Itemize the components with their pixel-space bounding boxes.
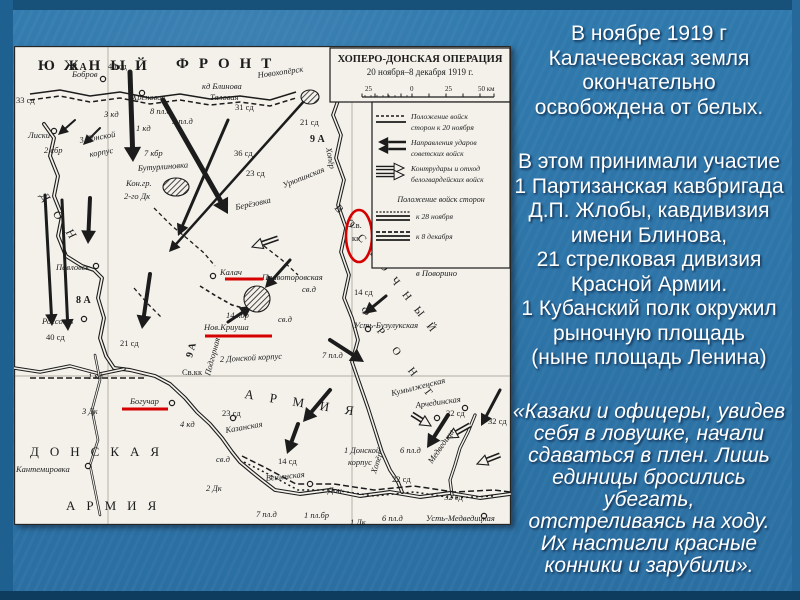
- map-label: 8 А: [76, 295, 92, 306]
- map-label: Св.кк: [182, 367, 203, 377]
- map-label: Богучар: [129, 396, 159, 406]
- map-image: ЮЖНЫЙФРОНТДОНСКАЯАРМИЯАРМИЯДОНВОСТОЧНЫЙФ…: [14, 46, 511, 525]
- map-label: 14 кбр: [226, 310, 249, 320]
- map-label: 1 кд: [136, 123, 151, 133]
- map-label: Калач: [219, 267, 242, 277]
- map-label: Хреновое: [131, 92, 166, 102]
- map-subtitle: 20 ноября–8 декабря 1919 г.: [367, 67, 473, 77]
- map-label: Урюпинская: [281, 164, 326, 190]
- map-label: Нов.Криуша: [203, 322, 249, 332]
- map-label: 40 сд: [108, 61, 127, 71]
- map-label: 3 Донской: [78, 129, 117, 145]
- map-label: 4 кд: [180, 419, 195, 429]
- slide-border-top: [0, 0, 800, 10]
- map-label: 14 сд: [278, 456, 297, 466]
- map-label: Бутурлиновка: [136, 160, 188, 174]
- map-label: в Поворино: [416, 268, 457, 278]
- map-label: 21 сд: [120, 338, 139, 348]
- map-label: 3 Дк: [81, 406, 99, 416]
- map-label: Правоторовская: [261, 272, 323, 282]
- map-label: 5 пл.д: [172, 116, 193, 126]
- map-label: 9 А: [184, 341, 199, 359]
- map-scale-label: 25: [445, 85, 453, 93]
- text-line: В этом принимали участие: [500, 150, 798, 175]
- map-label: корпус: [348, 457, 372, 467]
- map-label: 22 сд: [392, 474, 411, 484]
- text-line: (ныне площадь Ленина): [500, 346, 798, 371]
- map-label: кд Блинова: [202, 81, 242, 91]
- map-label: 32 сд: [444, 492, 463, 502]
- map-label: корпус: [89, 145, 115, 159]
- text-line: Красной Армии.: [500, 273, 798, 298]
- map-scale-label: 0: [410, 85, 414, 93]
- text-line: Их настигли красные: [500, 533, 798, 555]
- map-label: 9 А: [310, 134, 326, 145]
- map-label: 7 пл.д: [322, 350, 343, 360]
- text-line: конники и зарубили».: [500, 555, 798, 577]
- legend-label: сторон к 20 ноября: [411, 123, 474, 132]
- text-line: убегать,: [500, 489, 798, 511]
- map-scale-label: 50 км: [478, 85, 495, 93]
- map-label: Бобров: [71, 69, 98, 79]
- map-legend: Положение войсксторон к 20 ноябряНаправл…: [372, 102, 510, 268]
- text-line: рыночную площадь: [500, 322, 798, 347]
- text-line: имени Блинова,: [500, 224, 798, 249]
- text-line: окончательно: [500, 71, 798, 96]
- map-label: 21 сд: [300, 117, 319, 127]
- text-line: 1 Партизанская кавбригада: [500, 175, 798, 200]
- map-label: 3 кд: [103, 109, 119, 119]
- map-label: 2 сбр: [44, 145, 63, 155]
- text-line: себя в ловушке, начали: [500, 423, 798, 445]
- map-label: Кантемировка: [15, 464, 70, 474]
- map-label: 1 кд: [88, 371, 103, 381]
- map-label: Хопёр: [324, 146, 338, 170]
- map-title-box: ХОПЕРО-ДОНСКАЯ ОПЕРАЦИЯ20 ноября–8 декаб…: [330, 48, 510, 102]
- map-label: 23 сд: [222, 408, 241, 418]
- legend-label: Направления ударов: [410, 138, 477, 147]
- paragraph-quote: «Казаки и офицеры, увидевсебя в ловушке,…: [500, 401, 798, 577]
- map-label: Усть-Медведицкая: [426, 513, 495, 523]
- map-label: Берёзовка: [233, 195, 271, 212]
- map-label: 2-го Дк: [124, 191, 151, 201]
- map-label: 6 пл.д: [382, 513, 403, 523]
- map-label: Казанская: [224, 419, 264, 436]
- map-label: 2 Донской корпус: [220, 351, 283, 364]
- map-label: 7 кбр: [144, 148, 163, 158]
- text-line: 21 стрелковая дивизия: [500, 248, 798, 273]
- map-label: 8 пл.д: [150, 106, 171, 116]
- text-line: Д.П. Жлобы, кавдивизия: [500, 199, 798, 224]
- legend-label: Контрудары и отход: [410, 164, 480, 173]
- map-label: Медведица: [425, 427, 456, 466]
- map-label: Св.: [350, 220, 362, 230]
- map-label: 7 пл.д: [256, 509, 277, 519]
- map-scale-label: 25: [365, 85, 373, 93]
- paragraph-intro: В ноябре 1919 гКалачеевская земляокончат…: [500, 22, 798, 120]
- map-label: Павловск: [55, 262, 90, 272]
- text-line: 1 Кубанский полк окружил: [500, 297, 798, 322]
- map-label: Лиски: [27, 130, 50, 140]
- map-label: св.д: [302, 284, 317, 294]
- slide-border-left: [0, 0, 13, 600]
- map-label: 33 сд: [16, 95, 35, 105]
- operation-map: ЮЖНЫЙФРОНТДОНСКАЯАРМИЯАРМИЯДОНВОСТОЧНЫЙФ…: [14, 46, 511, 525]
- legend-header: Положение войск сторон: [396, 195, 484, 204]
- map-label: 14 сд: [354, 287, 373, 297]
- text-line: Калачеевская земля: [500, 47, 798, 72]
- slide: ЮЖНЫЙФРОНТДОНСКАЯАРМИЯАРМИЯДОНВОСТОЧНЫЙФ…: [0, 0, 800, 600]
- map-label: Усть-Бузулукская: [354, 320, 418, 330]
- map-label: св.д: [216, 454, 231, 464]
- text-line: освобождена от белых.: [500, 96, 798, 121]
- map-label: 31 сд: [235, 102, 254, 112]
- legend-label: к 8 декабря: [416, 232, 453, 241]
- map-label: св.д: [278, 314, 293, 324]
- map-label: Кон.гр.: [125, 178, 152, 188]
- map-label: Таловая: [210, 92, 239, 102]
- text-line: «Казаки и офицеры, увидев: [500, 401, 798, 423]
- map-label: Дон: [327, 485, 342, 495]
- map-title: ХОПЕРО-ДОНСКАЯ ОПЕРАЦИЯ: [338, 54, 503, 65]
- map-label: 1 пл.бр: [304, 510, 329, 520]
- slide-border-bottom: [0, 591, 800, 600]
- map-label: ДОНСКАЯ: [30, 444, 170, 459]
- map-label: 1 Дк: [350, 517, 367, 525]
- text-panel: В ноябре 1919 гКалачеевская земляокончат…: [500, 22, 798, 577]
- text-line: единицы бросились: [500, 467, 798, 489]
- map-label: кк: [352, 233, 361, 243]
- map-label: 2 Дк: [206, 483, 223, 493]
- legend-label: Положение войск: [410, 112, 468, 121]
- map-label: 23 сд: [246, 168, 265, 178]
- text-line: отстреливаясь на ходу.: [500, 511, 798, 533]
- text-line: сдаваться в плен. Лишь: [500, 445, 798, 467]
- legend-label: к 28 ноября: [416, 212, 453, 221]
- legend-label: белогвардейских войск: [411, 175, 484, 184]
- map-label: 22 сд: [446, 408, 465, 418]
- map-label: АРМИЯ: [66, 498, 167, 513]
- map-label: 6 пл.д: [400, 445, 421, 455]
- map-label: 36 сд: [234, 148, 253, 158]
- legend-label: советских войск: [411, 149, 464, 158]
- map-label: Россошь: [41, 316, 73, 326]
- paragraph-participants: В этом принимали участие1 Партизанская к…: [500, 150, 798, 371]
- text-line: В ноябре 1919 г: [500, 22, 798, 47]
- map-label: 40 сд: [46, 332, 65, 342]
